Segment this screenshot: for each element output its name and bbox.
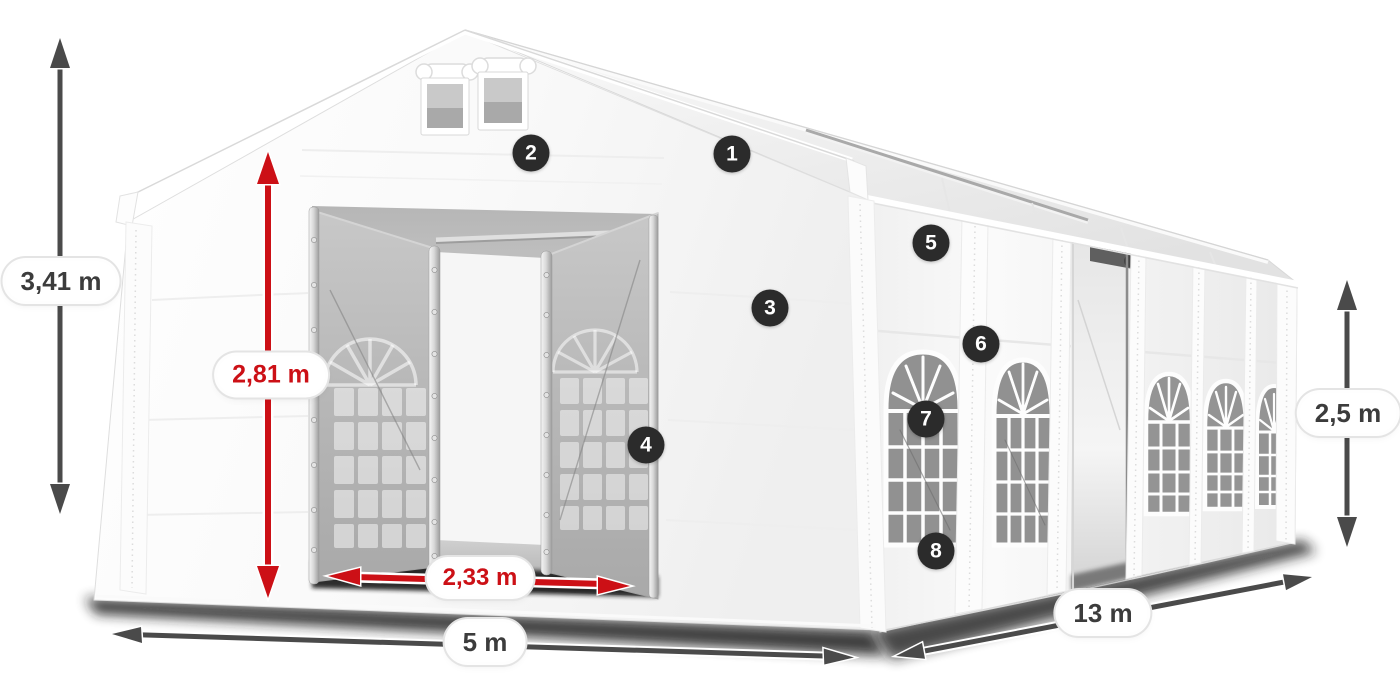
- side-window: [994, 360, 1052, 545]
- side-window: [886, 352, 960, 545]
- callout-badge-3[interactable]: 3: [752, 290, 789, 327]
- callout-badge-8[interactable]: 8: [918, 533, 955, 570]
- callout-badge-5[interactable]: 5: [913, 225, 950, 262]
- side-window: [1146, 374, 1192, 514]
- tent-illustration: [0, 0, 1400, 700]
- side-window: [1205, 381, 1246, 509]
- callout-badge-6[interactable]: 6: [963, 326, 1000, 363]
- dimension-label-entrance-height: 2,81 m: [217, 356, 325, 395]
- callout-badge-4[interactable]: 4: [628, 427, 665, 464]
- dimension-label-entrance-width: 2,33 m: [430, 560, 531, 596]
- tent-dimension-diagram: 3,41 m 2,81 m 2,33 m 5 m 13 m 2,5 m 1 2 …: [0, 0, 1400, 700]
- dimension-label-front-width: 5 m: [448, 622, 523, 662]
- front-entrance-opening: [309, 206, 658, 599]
- entrance-door-right: [546, 213, 658, 599]
- vent-window: [416, 64, 478, 135]
- vent-window: [472, 58, 536, 130]
- dimension-label-total-height: 3,41 m: [6, 261, 117, 301]
- callout-badge-1[interactable]: 1: [714, 136, 751, 173]
- callout-badge-7[interactable]: 7: [908, 401, 945, 438]
- entrance-door-left: [314, 211, 436, 582]
- callout-badge-2[interactable]: 2: [513, 135, 550, 172]
- dimension-label-side-wall-height: 2,5 m: [1300, 393, 1397, 433]
- dimension-label-side-length: 13 m: [1058, 593, 1147, 633]
